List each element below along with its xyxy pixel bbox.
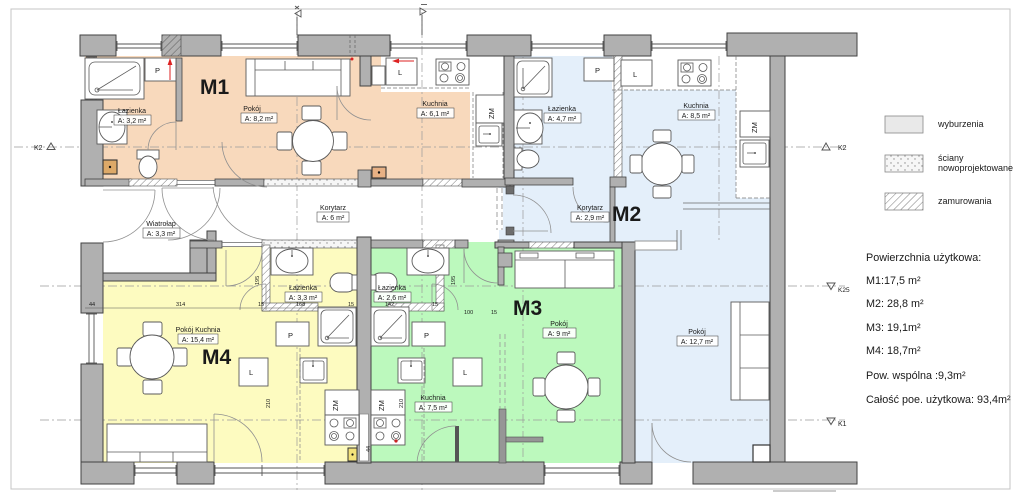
- svg-text:Pokój Kuchnia: Pokój Kuchnia: [176, 327, 221, 334]
- svg-text:Łazienka: Łazienka: [289, 285, 317, 292]
- svg-text:Pokój: Pokój: [688, 329, 706, 336]
- svg-text:168: 168: [296, 302, 305, 308]
- svg-text:195: 195: [255, 276, 261, 285]
- svg-text:A: 15,4 m²: A: 15,4 m²: [182, 337, 215, 344]
- svg-text:A: 9 m²: A: 9 m²: [548, 331, 571, 338]
- svg-text:Kuchnia: Kuchnia: [683, 103, 708, 110]
- svg-text:15: 15: [348, 302, 354, 308]
- svg-text:M4: M4: [202, 346, 231, 369]
- svg-text:nowoprojektowane: nowoprojektowane: [938, 163, 1013, 173]
- svg-text:A: 3,3 m²: A: 3,3 m²: [147, 231, 176, 238]
- svg-text:ściany: ściany: [938, 153, 964, 163]
- svg-text:A: 12,7 m²: A: 12,7 m²: [681, 339, 714, 346]
- svg-text:44: 44: [366, 446, 372, 452]
- svg-text:K2: K2: [34, 145, 43, 152]
- svg-text:K2: K2: [838, 145, 847, 152]
- svg-text:M4: 18,7m²: M4: 18,7m²: [866, 345, 921, 357]
- svg-text:100: 100: [464, 310, 473, 316]
- svg-text:P: P: [595, 66, 600, 75]
- svg-text:M3: 19,1m²: M3: 19,1m²: [866, 322, 921, 334]
- svg-text:Powierzchnia użytkowa:: Powierzchnia użytkowa:: [866, 252, 981, 264]
- svg-text:210: 210: [399, 399, 405, 408]
- svg-text:M2: M2: [612, 203, 641, 226]
- svg-text:A: 8,2 m²: A: 8,2 m²: [245, 116, 274, 123]
- svg-text:ZM: ZM: [377, 400, 386, 411]
- svg-text:Całość poe. użytkowa: 93,4m²: Całość poe. użytkowa: 93,4m²: [866, 394, 1011, 406]
- svg-text:L: L: [249, 368, 253, 377]
- svg-text:zamurowania: zamurowania: [938, 196, 992, 206]
- svg-text:L: L: [463, 368, 467, 377]
- svg-text:K25: K25: [838, 287, 850, 294]
- svg-text:A: 6 m²: A: 6 m²: [322, 215, 345, 222]
- svg-text:P: P: [288, 331, 293, 340]
- svg-text:M3: M3: [513, 297, 542, 320]
- svg-text:wyburzenia: wyburzenia: [937, 119, 984, 129]
- svg-text:A: 6,1 m²: A: 6,1 m²: [421, 111, 450, 118]
- svg-text:15: 15: [432, 302, 438, 308]
- svg-text:K1: K1: [838, 421, 847, 428]
- svg-text:P: P: [155, 66, 160, 75]
- svg-text:314: 314: [176, 302, 185, 308]
- svg-text:44: 44: [89, 302, 95, 308]
- svg-text:Wiatrołap: Wiatrołap: [146, 221, 176, 228]
- svg-text:A: 2,9 m²: A: 2,9 m²: [576, 215, 605, 222]
- svg-text:ZM: ZM: [750, 122, 759, 133]
- svg-text:A: 2,6 m²: A: 2,6 m²: [378, 295, 407, 302]
- svg-text:Łazienka: Łazienka: [548, 106, 576, 113]
- svg-text:Łazienka: Łazienka: [118, 108, 146, 115]
- svg-text:P: P: [424, 331, 429, 340]
- svg-text:A: 3,2 m²: A: 3,2 m²: [118, 118, 147, 125]
- svg-text:142: 142: [385, 302, 394, 308]
- svg-text:Korytarz: Korytarz: [577, 205, 604, 212]
- svg-text:210: 210: [266, 399, 272, 408]
- svg-text:L: L: [398, 68, 402, 77]
- svg-text:Pokój: Pokój: [243, 106, 261, 113]
- svg-text:195: 195: [451, 276, 457, 285]
- svg-text:L: L: [633, 70, 637, 79]
- svg-text:ZM: ZM: [331, 400, 340, 411]
- svg-text:Korytarz: Korytarz: [320, 205, 347, 212]
- svg-text:Kuchnia: Kuchnia: [422, 101, 447, 108]
- svg-text:A: 8,5 m²: A: 8,5 m²: [682, 113, 711, 120]
- svg-text:15: 15: [491, 310, 497, 316]
- svg-text:M1: M1: [200, 76, 229, 99]
- svg-text:M1:17,5 m²: M1:17,5 m²: [866, 275, 921, 287]
- svg-text:M2: 28,8 m²: M2: 28,8 m²: [866, 298, 924, 310]
- svg-text:A: 3,3 m²: A: 3,3 m²: [289, 295, 318, 302]
- svg-text:15: 15: [258, 302, 264, 308]
- svg-text:Pokój: Pokój: [550, 321, 568, 328]
- svg-text:A: 7,5 m²: A: 7,5 m²: [419, 405, 448, 412]
- svg-text:A: 4,7 m²: A: 4,7 m²: [548, 116, 577, 123]
- svg-text:ZM: ZM: [487, 108, 496, 119]
- svg-text:Pow. wspólna :9,3m²: Pow. wspólna :9,3m²: [866, 370, 966, 382]
- svg-text:Łazienka: Łazienka: [378, 285, 406, 292]
